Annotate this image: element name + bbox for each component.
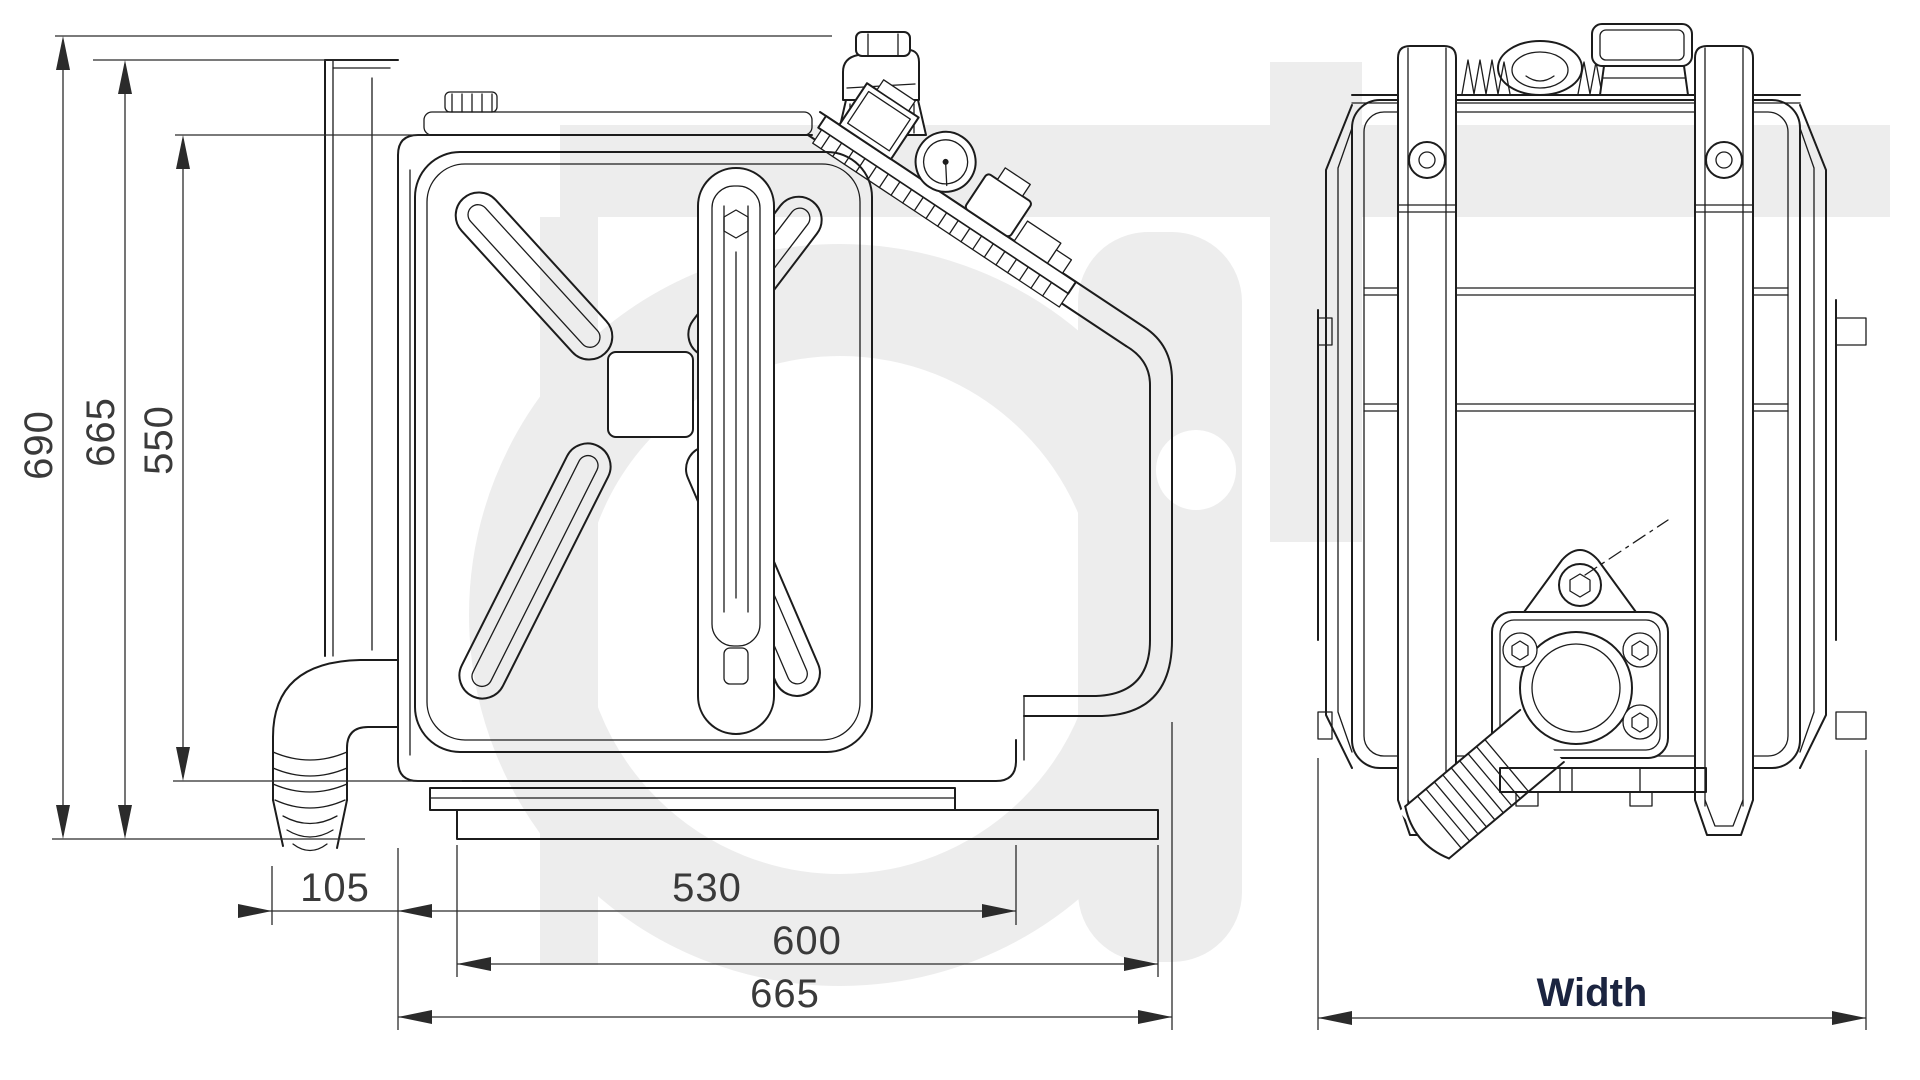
mounting-strap-right — [1695, 46, 1753, 835]
dim-label-665-vertical: 665 — [79, 397, 123, 467]
dim-label-665-horizontal: 665 — [750, 972, 820, 1016]
dim-label-600: 600 — [772, 919, 842, 963]
flange-bolt-icon — [1503, 633, 1537, 667]
side-sender-cap — [1592, 24, 1692, 95]
flange-bolt-icon — [1623, 705, 1657, 739]
tank-dimension-drawing: 690 665 550 105 — [0, 0, 1920, 1080]
dim-label-530: 530 — [672, 866, 742, 910]
dim-label-550: 550 — [137, 405, 181, 475]
dim-label-690: 690 — [17, 410, 61, 480]
technical-drawing-page: 690 665 550 105 — [0, 0, 1920, 1080]
level-gauge-channel — [698, 168, 774, 734]
mounting-strap-left — [1398, 46, 1456, 835]
dim-label-width: Width — [1537, 971, 1648, 1015]
dim-label-105: 105 — [300, 866, 370, 910]
center-label-plate — [608, 352, 693, 437]
flange-bolt-icon — [1623, 633, 1657, 667]
